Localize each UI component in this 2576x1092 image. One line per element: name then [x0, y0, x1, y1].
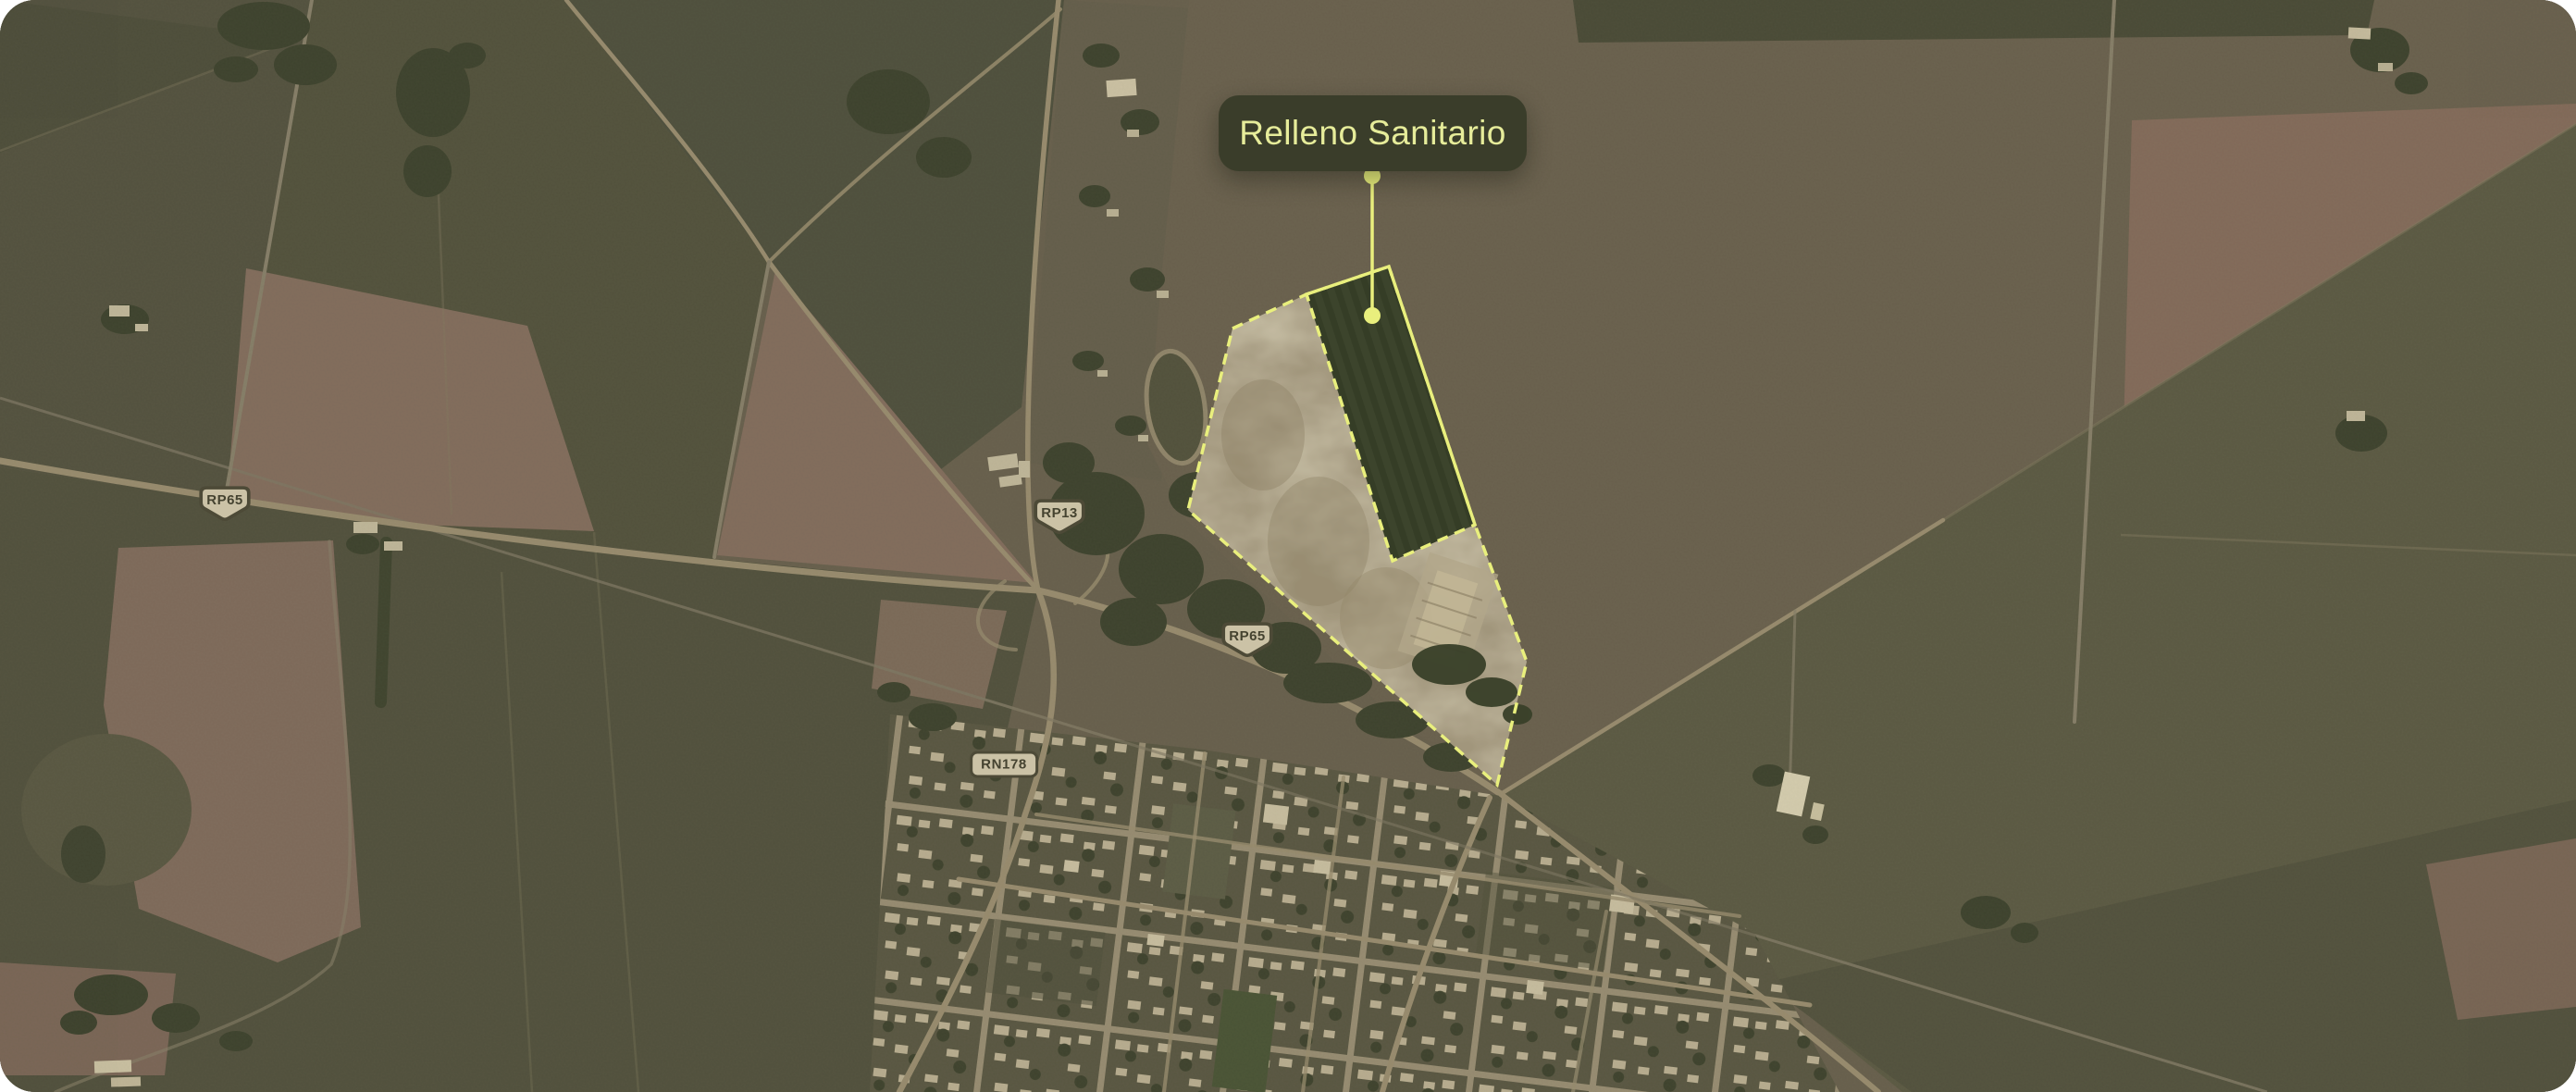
road-shield-rp13: RP13 — [1034, 499, 1085, 534]
road-shield-label: RP65 — [206, 493, 243, 507]
road-shield-label: RP65 — [1229, 629, 1266, 643]
road-shield-label: RP13 — [1041, 506, 1078, 520]
road-badge-rn178: RN178 — [970, 751, 1038, 778]
map-container[interactable]: RP65 RP13 RP65 RN178 Relleno Sanitario — [0, 0, 2576, 1092]
road-badge-label: RN178 — [981, 757, 1027, 773]
road-shield-rp65-west: RP65 — [199, 486, 251, 521]
page: RP65 RP13 RP65 RN178 Relleno Sanitario — [0, 0, 2576, 1092]
map-tooltip: Relleno Sanitario — [1219, 95, 1527, 171]
tooltip-label: Relleno Sanitario — [1239, 114, 1506, 153]
marker-location-dot[interactable] — [1364, 307, 1381, 324]
road-shield-rp65-east: RP65 — [1221, 622, 1273, 657]
